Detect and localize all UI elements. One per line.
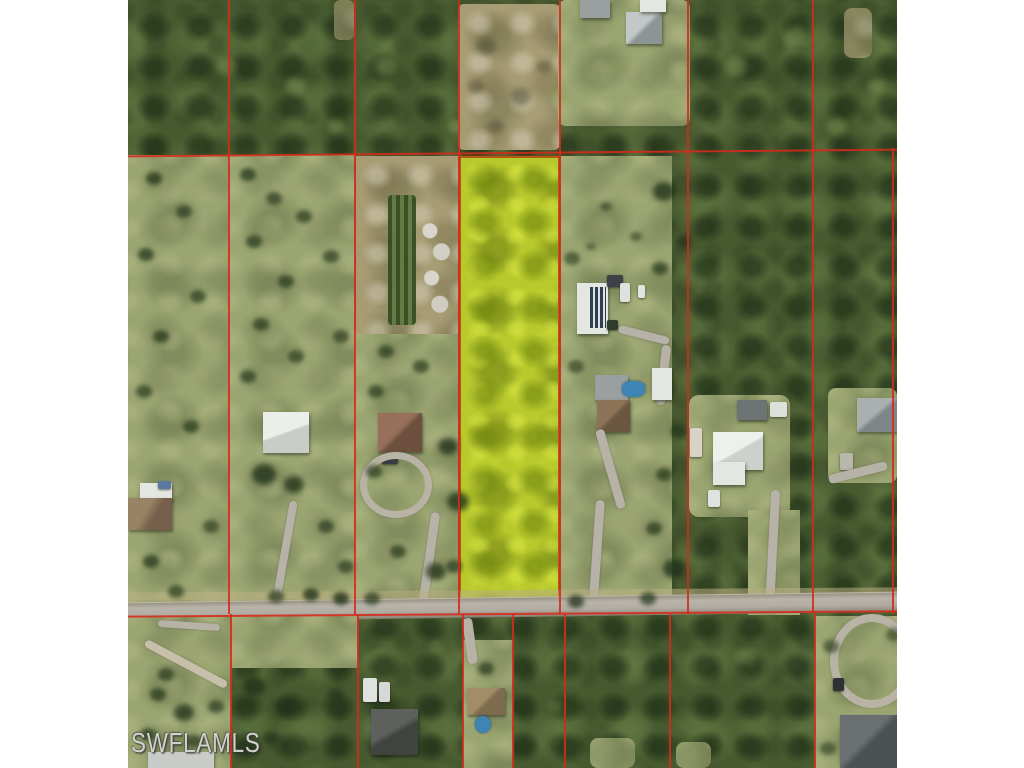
mls-listing-photo-page: SWFLAMLS: [0, 0, 1024, 768]
parcel-boundary-line: [230, 614, 232, 768]
house-roof: [713, 462, 745, 485]
parcel-boundary-line: [669, 614, 671, 768]
parcel-boundary-line: [357, 614, 359, 768]
cars: [363, 678, 377, 702]
car: [833, 678, 844, 691]
canopy-highlight-scatter: [128, 0, 144, 13]
parcel-boundary-line: [458, 0, 460, 614]
building-roof: [626, 12, 662, 44]
pasture: [128, 155, 229, 615]
house-roof: [378, 413, 422, 452]
cleared-patch: [844, 8, 872, 58]
car: [708, 490, 720, 507]
parcel-boundary-line: [462, 614, 464, 768]
parcel-boundary-line: [687, 0, 689, 614]
parcel-boundary-line: [812, 0, 814, 614]
aerial-photo: SWFLAMLS: [128, 0, 897, 768]
car: [158, 481, 171, 489]
loop-driveway: [360, 452, 432, 518]
pasture: [229, 155, 355, 615]
swimming-pool: [622, 381, 645, 397]
crop-rows: [388, 195, 416, 325]
shed: [840, 453, 853, 470]
van: [770, 402, 787, 417]
cleared-field: [458, 4, 560, 150]
parcel-boundary-line: [228, 0, 230, 614]
parcel-boundary-line: [559, 0, 561, 614]
tree-canopy-scatter: [128, 0, 144, 13]
house-roof: [840, 715, 897, 768]
parcel-boundary-line: [814, 614, 816, 768]
shed-roof: [737, 400, 767, 420]
sand-piles: [420, 215, 453, 320]
parcel-boundary-line: [564, 614, 566, 768]
trailer: [690, 428, 702, 457]
house-roof: [597, 400, 630, 432]
car: [607, 320, 618, 330]
parcel-boundary-line: [512, 614, 514, 768]
shed-roof: [652, 368, 672, 400]
solar-panels: [590, 287, 606, 328]
grass-clearing: [590, 738, 635, 768]
trailer: [638, 285, 645, 298]
parcel-boundary-line: [354, 0, 356, 614]
house-roof: [263, 412, 309, 453]
parcel-boundary-line: [892, 148, 894, 614]
swimming-pool: [475, 716, 491, 733]
tree-canopy-scatter: [128, 0, 144, 13]
subject-parcel-highlight: [459, 156, 560, 614]
grass-clearing: [676, 742, 711, 768]
house-roof: [857, 398, 897, 432]
field-shadow-scatter: [128, 0, 144, 13]
trailer: [620, 283, 630, 302]
building-roof: [580, 0, 610, 18]
house-roof: [467, 688, 505, 715]
watermark: SWFLAMLS: [131, 727, 261, 759]
grass-clearing: [558, 0, 690, 126]
house-roof: [371, 709, 418, 755]
cleared-patch: [334, 0, 354, 40]
trailer-roof: [640, 0, 666, 12]
grass: [231, 616, 358, 668]
cars: [379, 682, 390, 702]
house-roof: [128, 498, 172, 530]
